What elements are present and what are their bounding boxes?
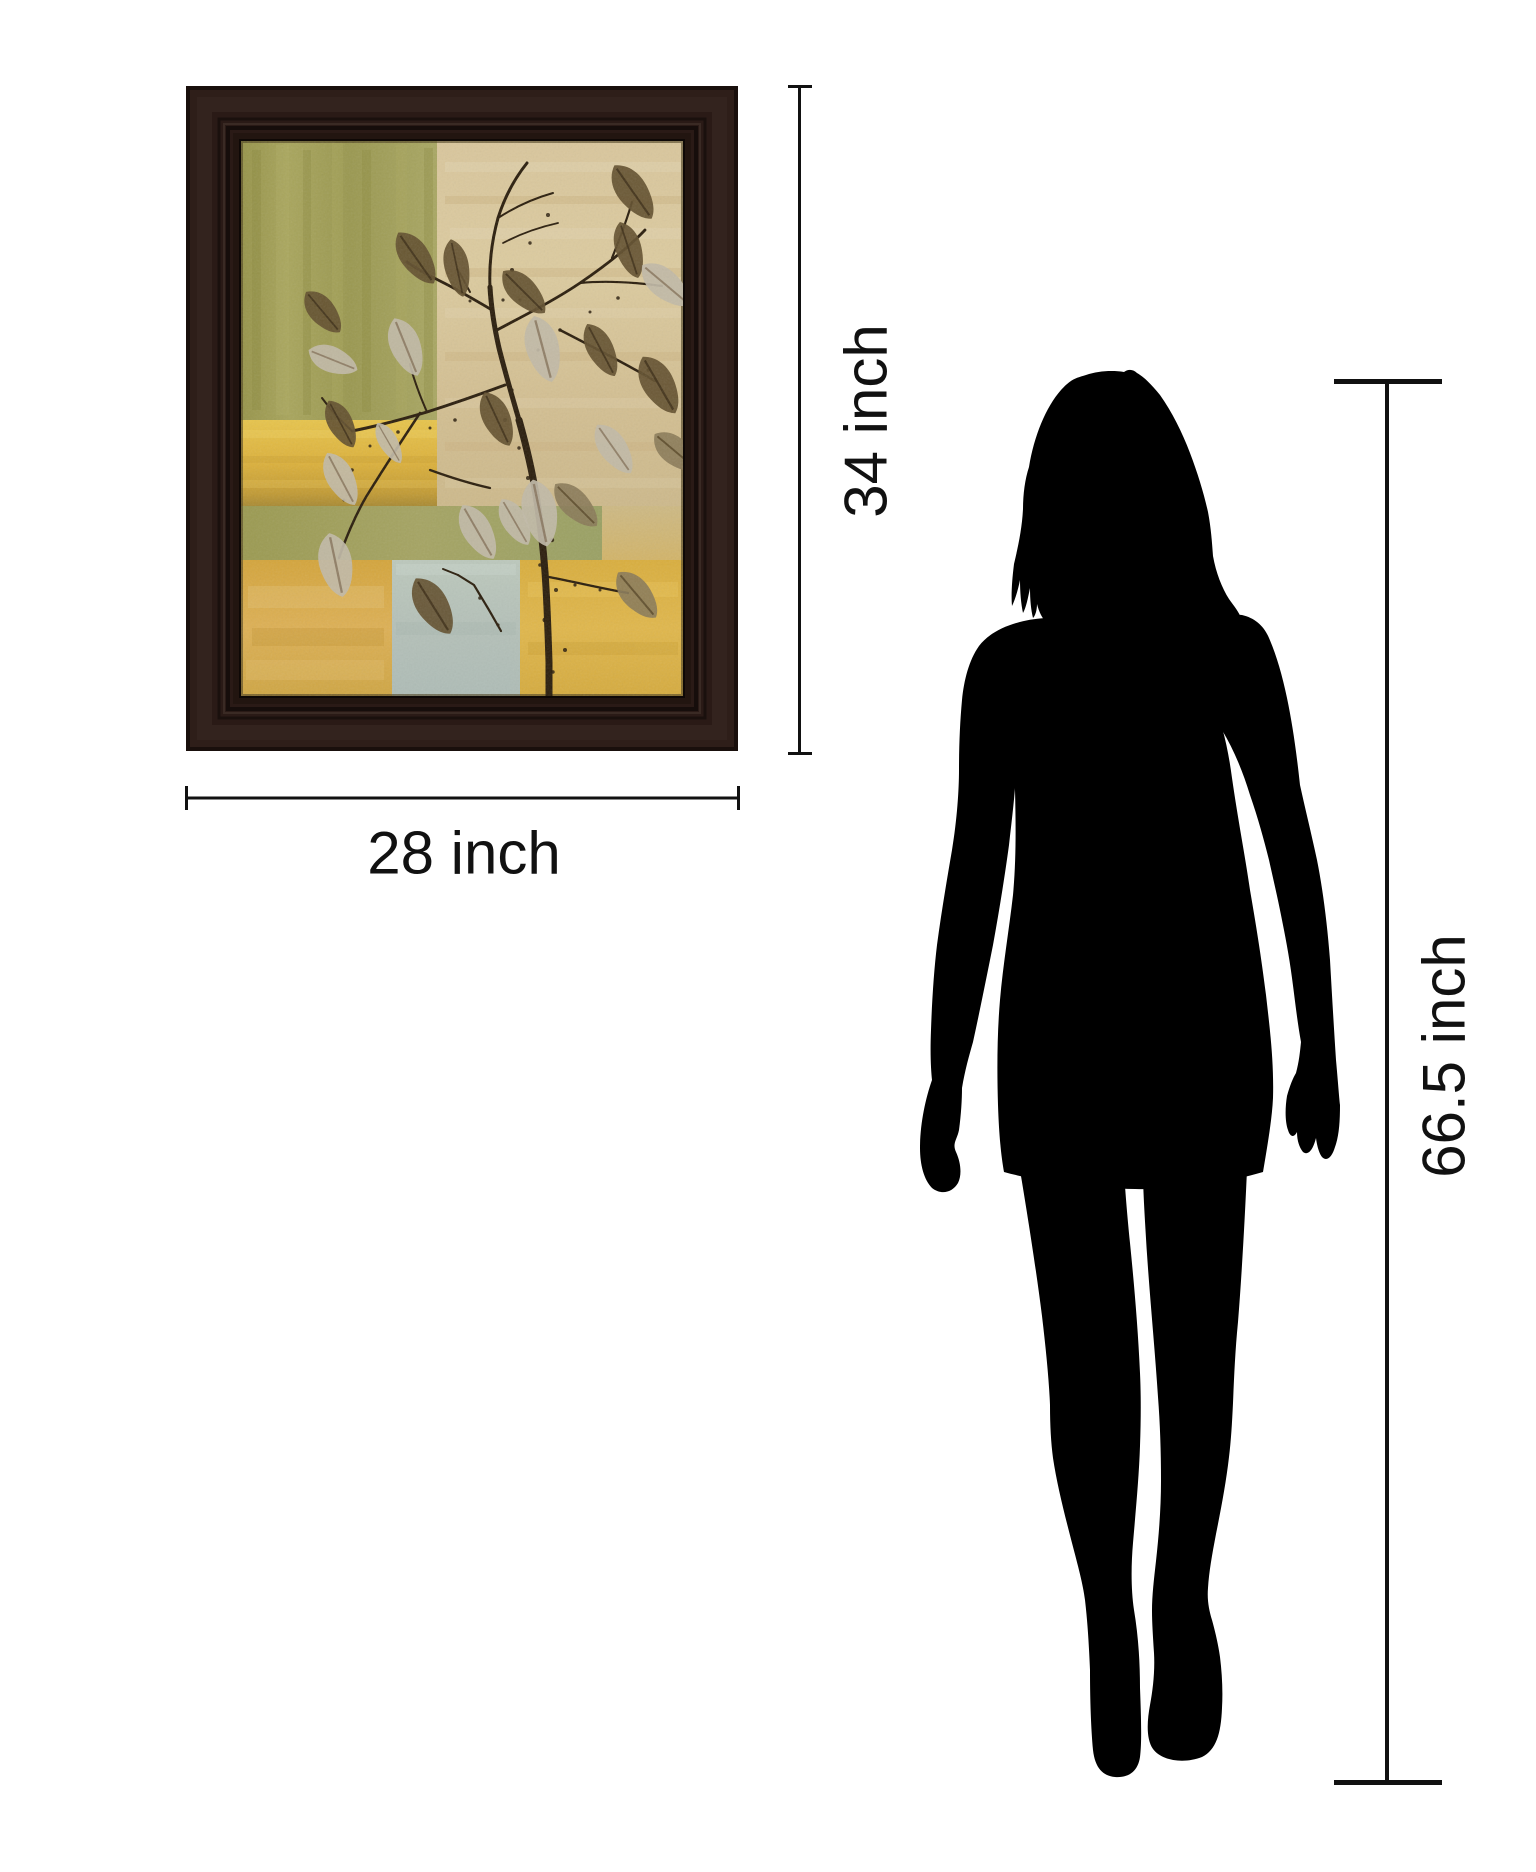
svg-text:28 inch: 28 inch bbox=[367, 820, 560, 887]
svg-text:34 inch: 34 inch bbox=[833, 324, 900, 517]
svg-text:66.5 inch: 66.5 inch bbox=[1411, 934, 1478, 1178]
